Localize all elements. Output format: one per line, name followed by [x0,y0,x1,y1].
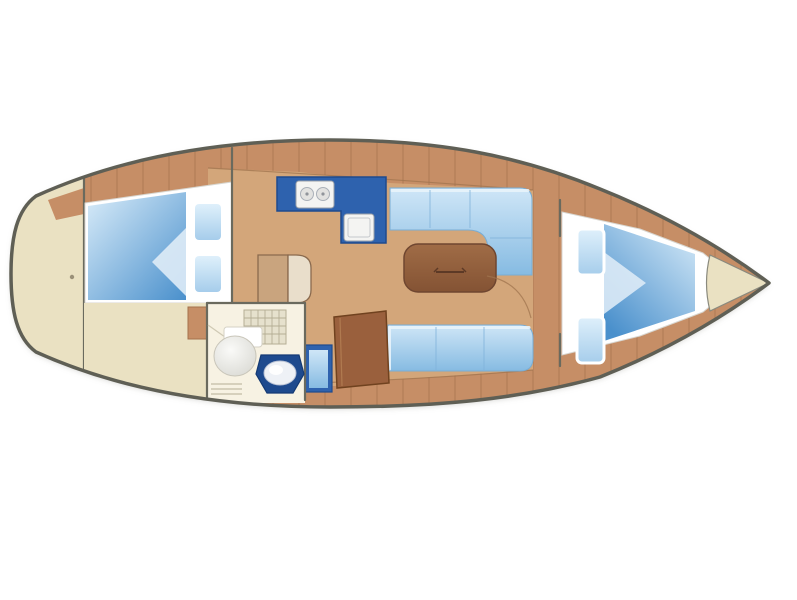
stove-burner-right-center [321,192,324,195]
aft-pillow-2-inner [195,256,221,292]
stern-drain-dot [70,275,74,279]
toilet-bowl [214,336,256,376]
wet-locker-seat [305,345,332,392]
head-door-locker [188,307,208,339]
interior [0,130,797,420]
companionway-step-left [258,255,288,303]
companionway-step-right [288,255,311,303]
aft-pillow-1-inner [195,204,221,240]
floorplan-svg [0,0,797,600]
companionway-steps [258,255,311,303]
vberth-pillow-bottom [577,317,604,363]
table-top [404,244,496,292]
washbasin-highlight [269,365,283,375]
vberth-pillow-top [577,229,604,275]
boat-floorplan-canvas [0,0,797,600]
port-settee-cushions [388,325,533,371]
stove-burner-left-center [305,192,308,195]
wet-locker-cushion [309,350,328,388]
saloon-table [404,244,496,292]
port-settee [388,325,533,371]
